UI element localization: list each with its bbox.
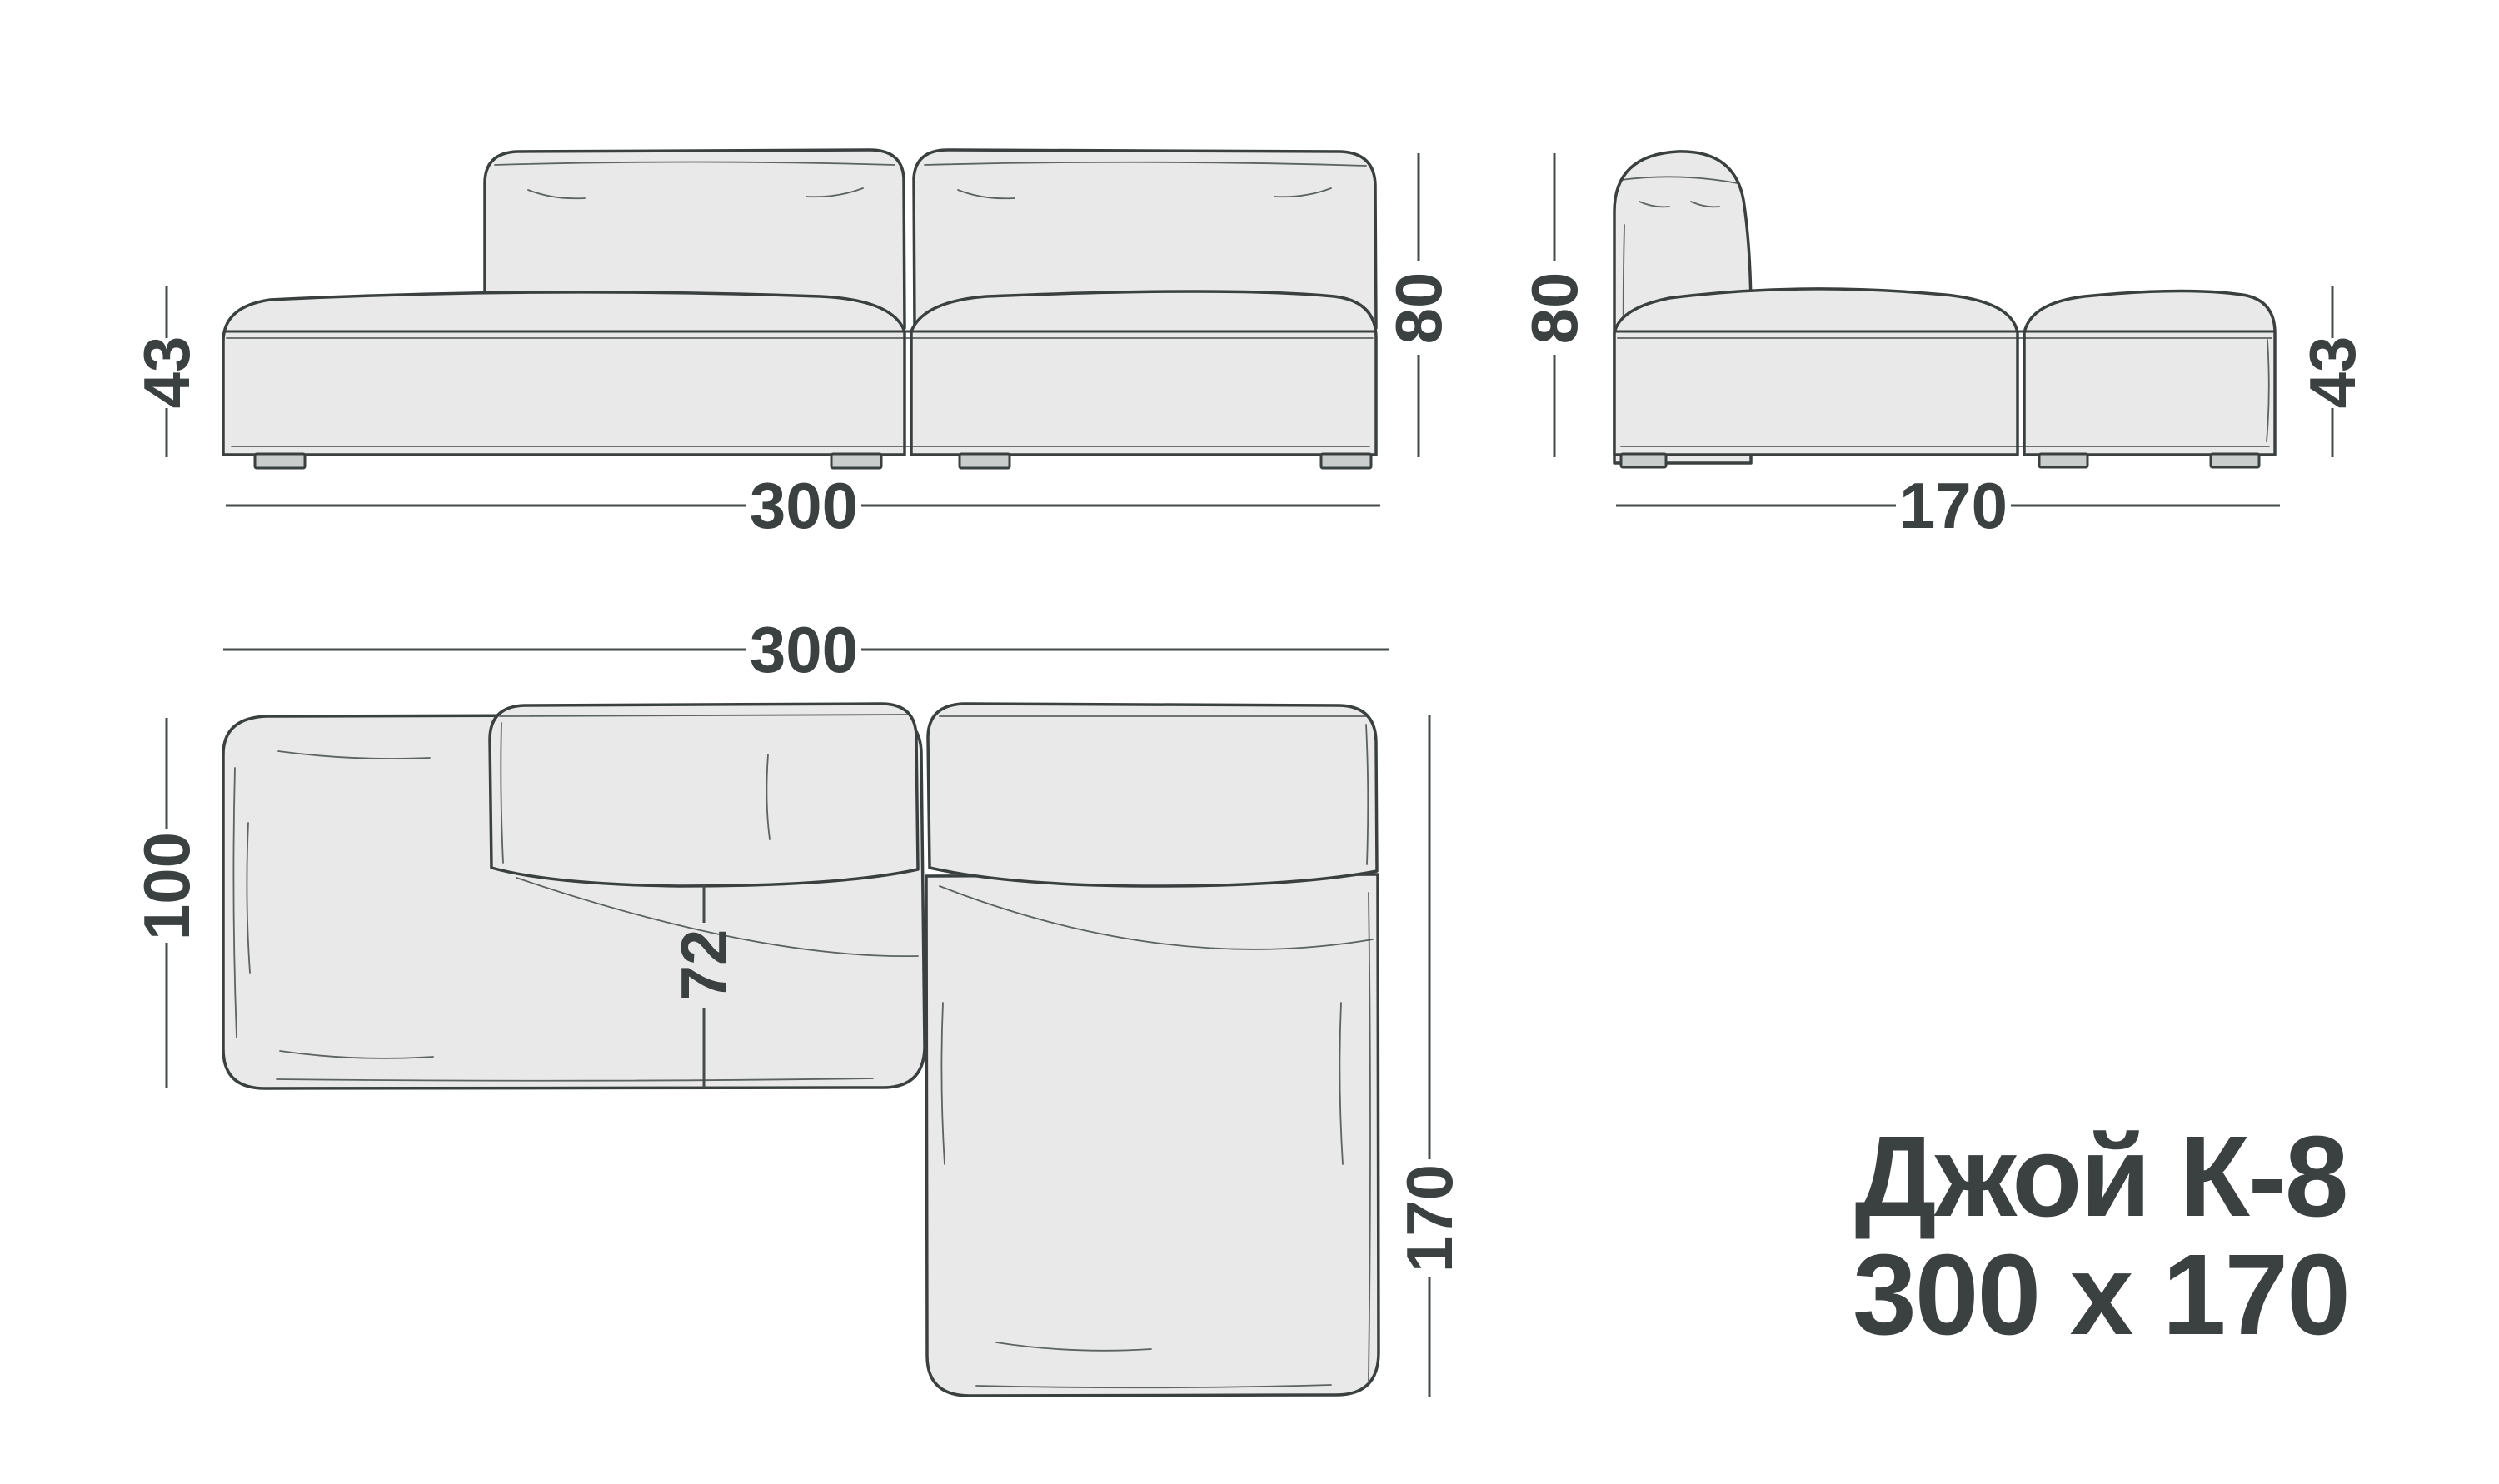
front-dim-width: 300 bbox=[226, 469, 1380, 542]
side-dim-depth-label: 170 bbox=[1899, 469, 2008, 542]
side-dim-total-height: 80 bbox=[1518, 153, 1591, 457]
front-dim-total-height: 80 bbox=[1382, 153, 1455, 457]
front-dim-width-label: 300 bbox=[750, 469, 858, 542]
front-seat-right-module bbox=[911, 291, 1376, 455]
top-backrest-cushion-left bbox=[490, 704, 918, 886]
side-dim-total-height-label: 80 bbox=[1518, 272, 1591, 345]
top-dim-width: 300 bbox=[223, 613, 1389, 686]
front-view: 43 80 300 bbox=[130, 150, 1455, 542]
side-leg bbox=[2211, 454, 2259, 467]
product-name: Джой К-8 bbox=[1854, 1113, 2347, 1241]
top-dim-chaise-depth-label: 170 bbox=[1393, 1164, 1466, 1272]
front-dim-seat-height: 43 bbox=[130, 286, 203, 457]
top-dim-left-depth: 100 bbox=[130, 718, 203, 1088]
side-leg bbox=[1621, 454, 1666, 467]
top-chaise-module bbox=[926, 874, 1379, 1396]
side-seat-module bbox=[1614, 289, 2018, 455]
front-seat-left-module bbox=[223, 292, 905, 455]
diagram-canvas: 43 80 300 80 bbox=[0, 0, 2499, 1484]
top-dim-width-label: 300 bbox=[750, 613, 858, 686]
top-backrest-cushion-right bbox=[928, 704, 1377, 886]
side-leg bbox=[2039, 454, 2087, 467]
top-view: 300 100 72 170 bbox=[130, 613, 1466, 1397]
product-size: 300 х 170 bbox=[1853, 1231, 2349, 1359]
front-leg bbox=[1321, 454, 1371, 468]
side-dim-depth: 170 bbox=[1616, 469, 2280, 542]
side-view: 80 43 170 bbox=[1518, 152, 2369, 542]
front-dim-total-height-label: 80 bbox=[1382, 272, 1455, 345]
front-leg bbox=[831, 454, 881, 468]
top-dim-left-depth-label: 100 bbox=[130, 832, 203, 940]
top-dim-chaise-depth: 170 bbox=[1393, 715, 1466, 1397]
front-leg bbox=[255, 454, 305, 468]
side-dim-seat-height-label: 43 bbox=[2296, 336, 2369, 409]
side-ottoman-module bbox=[2024, 291, 2275, 455]
front-leg bbox=[960, 454, 1010, 468]
sofa-dimension-diagram: 43 80 300 80 bbox=[0, 0, 2499, 1484]
side-dim-seat-height: 43 bbox=[2296, 286, 2369, 457]
product-title: Джой К-8 300 х 170 bbox=[1853, 1113, 2349, 1359]
top-dim-seat-depth-label: 72 bbox=[667, 929, 741, 1002]
front-dim-seat-height-label: 43 bbox=[130, 336, 203, 409]
